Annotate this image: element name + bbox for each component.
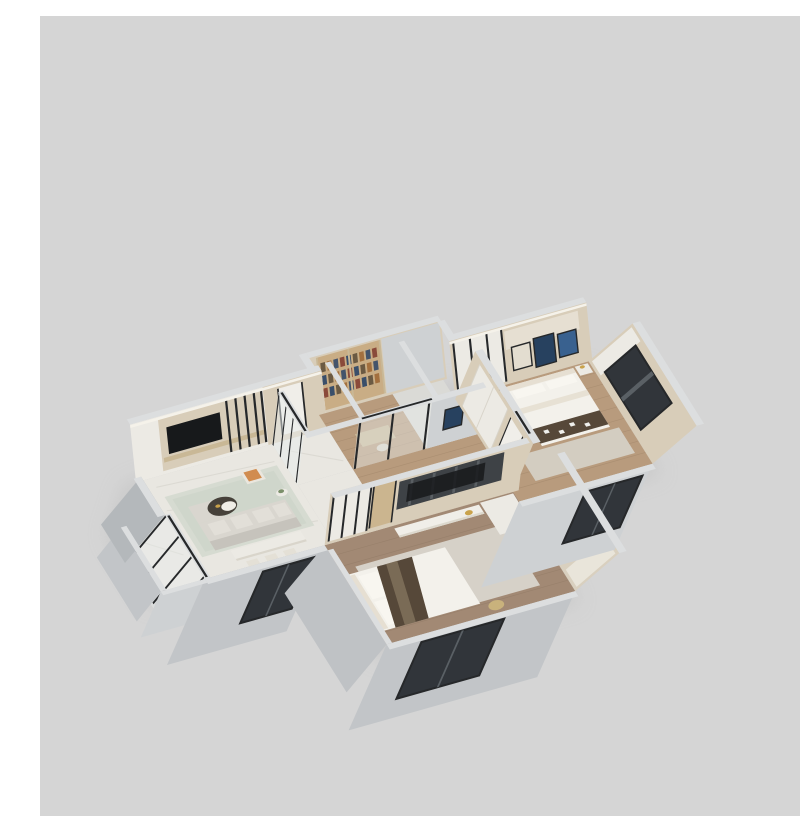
apartment-dollhouse-svg xyxy=(40,16,800,816)
floorplan-render: 3D dollhouse render of a three-room apar… xyxy=(40,16,800,816)
